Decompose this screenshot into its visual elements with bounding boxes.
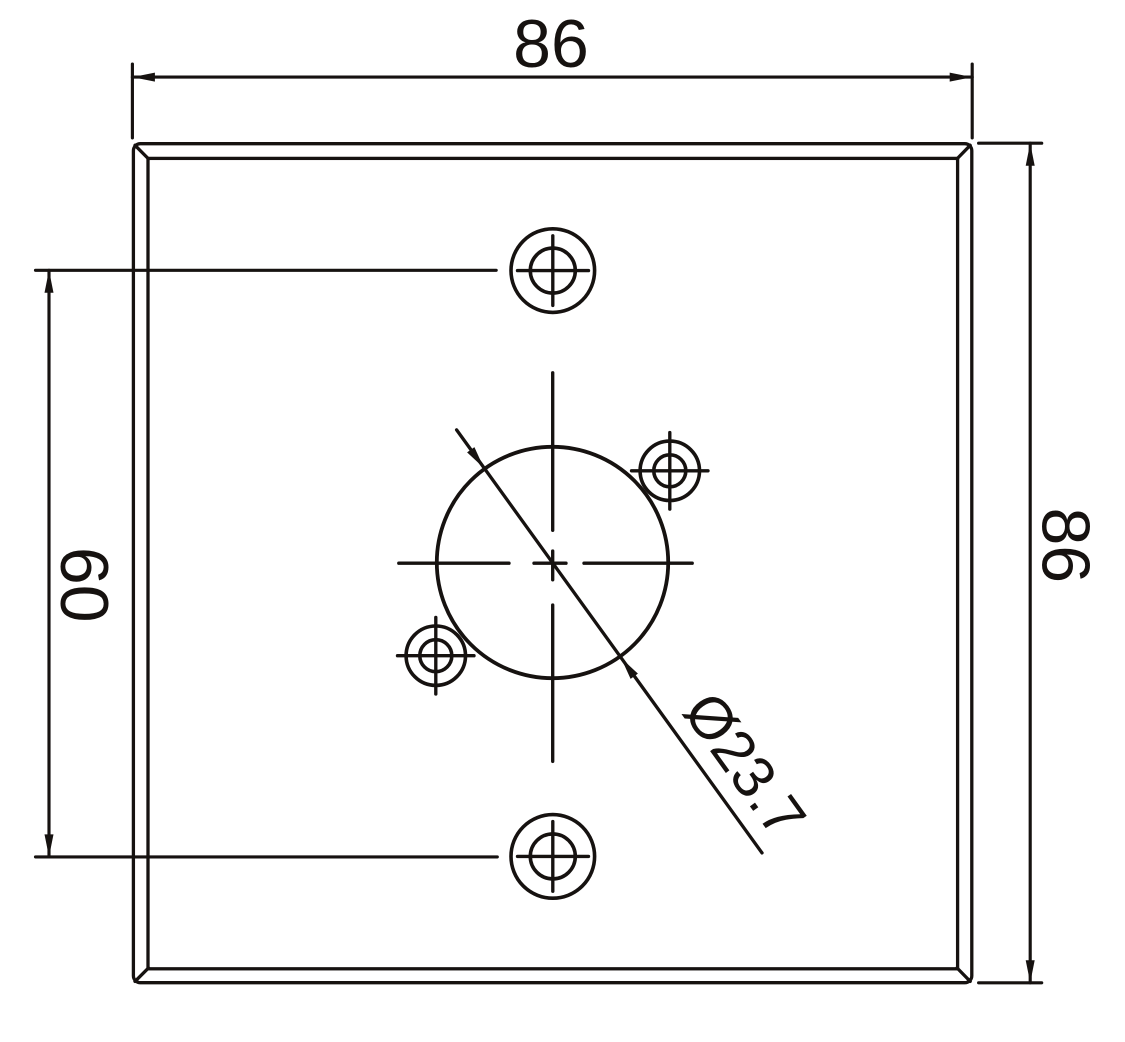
svg-text:86: 86 <box>513 6 589 82</box>
svg-text:86: 86 <box>1028 507 1104 583</box>
svg-text:60: 60 <box>46 547 122 623</box>
